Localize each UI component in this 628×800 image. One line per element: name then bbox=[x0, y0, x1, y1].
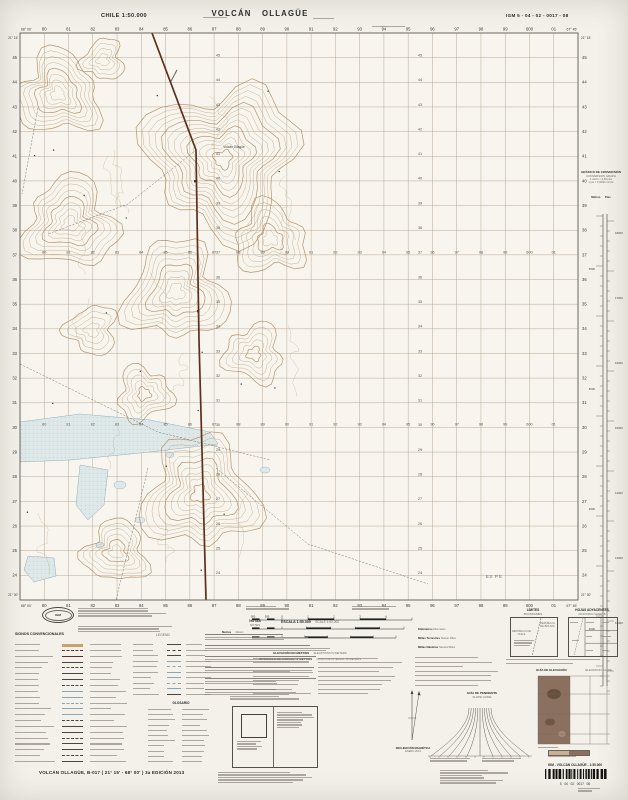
legend-row-label bbox=[90, 743, 127, 745]
northing-label-left: 28 bbox=[12, 474, 17, 479]
microtext-line bbox=[246, 606, 276, 607]
easting-label-interior: 90 bbox=[285, 250, 289, 254]
legend-row-symbol bbox=[167, 666, 181, 669]
salar-pond bbox=[260, 467, 270, 473]
refbox-caption bbox=[230, 696, 314, 701]
northing-label-interior: 39 bbox=[418, 201, 422, 205]
legend-title-es: SIGNOS CONVENCIONALES bbox=[15, 632, 64, 636]
legend-row-label bbox=[133, 694, 162, 696]
microtext-line bbox=[133, 683, 154, 684]
legend-row-symbol bbox=[167, 688, 181, 691]
northing-label-interior: 34 bbox=[216, 325, 220, 329]
easting-label-interior: 92 bbox=[333, 423, 337, 427]
legend-row-label bbox=[15, 714, 56, 716]
microtext-line bbox=[133, 655, 158, 656]
easting-label-bottom: 87 bbox=[212, 603, 217, 608]
reference-note bbox=[415, 671, 501, 673]
spot-height bbox=[34, 155, 35, 156]
slope-footnote bbox=[482, 758, 528, 763]
microtext-line bbox=[415, 675, 491, 676]
easting-label-interior: 93 bbox=[358, 250, 362, 254]
elevation-color-high bbox=[569, 751, 589, 755]
legend-row-label bbox=[90, 738, 127, 740]
datum-value bbox=[318, 662, 406, 664]
microtext-line bbox=[78, 631, 160, 632]
reference-note bbox=[415, 675, 501, 677]
northing-label-left: 44 bbox=[12, 80, 17, 85]
northing-label-right: 42 bbox=[582, 129, 587, 134]
map-sheet-page: { "colors":{"paper":"#f7f5ee","grid_line… bbox=[0, 0, 628, 800]
easting-label-interior: 91 bbox=[309, 250, 313, 254]
northing-label-interior: 26 bbox=[216, 522, 220, 526]
microtext-line bbox=[182, 756, 202, 757]
microtext-line bbox=[602, 622, 609, 623]
legend-row-label bbox=[90, 697, 127, 699]
legend-row-symbol bbox=[167, 655, 181, 658]
easting-label-top: 92 bbox=[333, 27, 338, 32]
glossary-translation bbox=[182, 745, 214, 747]
microtext-line bbox=[15, 691, 38, 692]
microtext-line bbox=[482, 760, 514, 761]
microtext-line bbox=[440, 770, 488, 771]
fan-curve bbox=[431, 708, 469, 756]
colorbar-ticks bbox=[548, 756, 588, 758]
legend-title-en: LEGEND bbox=[156, 633, 170, 637]
adjoining-sheet-code bbox=[586, 636, 596, 638]
easting-label-top: 87 bbox=[212, 27, 217, 32]
spot-height bbox=[279, 171, 280, 172]
corner-ne-lat: 21° 15' bbox=[581, 36, 591, 40]
northing-label-interior: 29 bbox=[418, 448, 422, 452]
microtext-line bbox=[90, 743, 122, 744]
easting-label-interior: 600 bbox=[526, 250, 532, 254]
reference-note bbox=[415, 680, 501, 682]
microtext-line bbox=[90, 726, 127, 727]
microtext-line bbox=[318, 662, 402, 663]
unit-label-es: Millas Náuticas bbox=[418, 645, 438, 649]
microtext-line bbox=[277, 719, 303, 720]
datum-value bbox=[318, 658, 406, 660]
sheet-code: IGM 5 - 04 - 02 - 0017 - 08 bbox=[506, 13, 569, 18]
spot-height bbox=[106, 312, 107, 313]
northing-label-right: 44 bbox=[582, 80, 587, 85]
microtext-line bbox=[15, 738, 48, 739]
scalebar-segment bbox=[350, 636, 373, 638]
country-scale-label: CHILE 1:50.000 bbox=[101, 13, 147, 19]
barcode-title: IGM - VOLCÁN OLLAGÜE - 1:50.000 bbox=[540, 763, 610, 767]
northing-label-interior: 41 bbox=[216, 152, 220, 156]
datum-label bbox=[253, 689, 311, 691]
adjoining-sheet-code bbox=[586, 650, 596, 652]
microtext-line bbox=[277, 714, 312, 715]
microtext-line bbox=[230, 696, 279, 697]
microtext-line bbox=[352, 608, 389, 609]
easting-label-interior: 81 bbox=[66, 250, 70, 254]
publisher-note bbox=[78, 608, 196, 618]
scalebar-segment bbox=[267, 627, 275, 629]
microtext-line bbox=[318, 667, 393, 668]
adjoining-title-en: ADJOINING SHEETS bbox=[566, 612, 618, 616]
northing-label-interior: 44 bbox=[216, 78, 220, 82]
datum-value bbox=[318, 671, 406, 673]
microtext-line bbox=[15, 714, 45, 715]
sheet-reference-box bbox=[232, 706, 318, 768]
easting-label-interior: 99 bbox=[503, 250, 507, 254]
northing-label-left: 45 bbox=[12, 55, 17, 60]
fine-print bbox=[218, 772, 318, 784]
microtext-line bbox=[182, 719, 207, 720]
microtext-line bbox=[90, 738, 124, 739]
legend-row-symbol bbox=[62, 673, 82, 676]
thumb-axis-labels bbox=[538, 747, 568, 749]
northing-label-interior: 34 bbox=[418, 325, 422, 329]
glossary-translation bbox=[182, 740, 214, 742]
microtext-line bbox=[90, 644, 121, 645]
easting-label-interior: 85 bbox=[163, 423, 167, 427]
northing-label-interior: 31 bbox=[418, 399, 422, 403]
legend-row-label bbox=[15, 726, 56, 728]
datum-label bbox=[253, 667, 311, 669]
easting-label-interior: 84 bbox=[139, 250, 143, 254]
glossary-term bbox=[148, 735, 176, 737]
easting-label-interior: 97 bbox=[455, 250, 459, 254]
easting-label-interior: 93 bbox=[358, 423, 362, 427]
easting-label-interior: 80 bbox=[42, 250, 46, 254]
microtext-line bbox=[78, 628, 159, 629]
microtext-line bbox=[318, 689, 380, 690]
northing-label-interior: 33 bbox=[418, 349, 422, 353]
easting-label-interior: 88 bbox=[236, 250, 240, 254]
microtext-line bbox=[148, 709, 171, 710]
easting-label-bottom: 81 bbox=[66, 603, 71, 608]
legend-row-label bbox=[15, 644, 56, 646]
northing-label-interior: 35 bbox=[418, 300, 422, 304]
conversion-note-2: 1 pie = 0,3048 metros bbox=[576, 181, 626, 184]
refbox-note bbox=[277, 712, 315, 729]
legend-row-symbol bbox=[62, 749, 82, 752]
microtext-line bbox=[253, 693, 311, 694]
legend-row-symbol bbox=[62, 656, 82, 659]
microtext-line bbox=[372, 26, 405, 27]
microtext-line bbox=[538, 747, 558, 748]
glossary-translation bbox=[182, 719, 214, 721]
northing-label-left: 43 bbox=[12, 104, 17, 109]
reference-note bbox=[415, 666, 501, 668]
refbox-note bbox=[237, 741, 269, 751]
elevation-guide-header: GUÍA DE ELEVACIÓN ELEVATION GUIDE bbox=[536, 668, 612, 672]
microtext-line bbox=[186, 688, 204, 689]
adjoining-sheet-code bbox=[602, 622, 612, 624]
salar-pond bbox=[114, 481, 126, 489]
easting-label-interior: 99 bbox=[503, 423, 507, 427]
datum-label bbox=[253, 680, 311, 682]
easting-label-top: 01 bbox=[551, 27, 556, 32]
corner-sw-lon: 68° 00' bbox=[21, 604, 32, 608]
microtext-line bbox=[186, 672, 206, 673]
spot-height bbox=[157, 95, 158, 96]
barcode-stripe bbox=[545, 769, 546, 779]
easting-label-interior: 96 bbox=[430, 423, 434, 427]
microtext-line bbox=[15, 726, 54, 727]
boundaries-header: LÍMITES BOUNDARIES bbox=[508, 608, 558, 616]
easting-label-interior: 600 bbox=[526, 423, 532, 427]
legend-row-label bbox=[90, 667, 127, 669]
spot-height bbox=[140, 371, 141, 372]
microtext-line bbox=[182, 709, 209, 710]
microtext-line bbox=[186, 650, 207, 651]
spot-height bbox=[223, 514, 224, 515]
microtext-line bbox=[133, 688, 150, 689]
microtext-line bbox=[148, 735, 168, 736]
microtext-line bbox=[253, 658, 310, 659]
legend-row-label bbox=[90, 720, 127, 722]
legend-row-symbol bbox=[167, 672, 181, 675]
igm-logo-ring bbox=[45, 610, 72, 621]
microtext-line bbox=[440, 772, 508, 773]
elevation-color-low bbox=[549, 751, 569, 755]
scale-tick-label: 2 bbox=[333, 615, 335, 619]
microtext-line bbox=[90, 673, 111, 674]
easting-label-interior: 95 bbox=[406, 423, 410, 427]
microtext-line bbox=[440, 775, 482, 776]
microtext-line bbox=[572, 640, 579, 641]
easting-label-interior: 86 bbox=[188, 423, 192, 427]
legend-row-symbol bbox=[62, 685, 82, 688]
barcode-stripe bbox=[563, 769, 564, 779]
microtext-line bbox=[15, 703, 39, 704]
northing-label-interior: 44 bbox=[418, 78, 422, 82]
northing-label-left: 42 bbox=[12, 129, 17, 134]
legend-row-label bbox=[90, 662, 127, 664]
easting-label-top: 90 bbox=[285, 27, 290, 32]
microtext-line bbox=[15, 673, 39, 674]
microtext-line bbox=[415, 662, 492, 663]
northing-label-left: 33 bbox=[12, 351, 17, 356]
microtext-line bbox=[230, 698, 299, 699]
legend-row-label bbox=[90, 703, 127, 705]
refbox-square-diagram bbox=[241, 714, 267, 738]
microtext-line bbox=[90, 679, 120, 680]
datum-label bbox=[253, 676, 311, 678]
microtext-line bbox=[237, 746, 262, 747]
microtext-line bbox=[440, 777, 484, 778]
barcode-stripe bbox=[593, 769, 595, 779]
legend-row-label bbox=[15, 656, 56, 658]
barcode-stripe bbox=[548, 769, 550, 779]
glossary-translation bbox=[182, 730, 214, 732]
legend-row-symbol bbox=[62, 743, 82, 746]
microtext-line bbox=[182, 730, 207, 731]
legend-row-symbol bbox=[62, 703, 82, 706]
microtext-line bbox=[148, 745, 164, 746]
easting-label-interior: 92 bbox=[333, 250, 337, 254]
microtext-line bbox=[15, 685, 39, 686]
reference-note bbox=[415, 685, 501, 687]
datum-value bbox=[318, 676, 406, 678]
northing-label-interior: 29 bbox=[216, 448, 220, 452]
legend-row-symbol bbox=[167, 650, 181, 653]
easting-label-interior: 98 bbox=[479, 250, 483, 254]
scale-caption bbox=[352, 606, 410, 611]
northing-label-left: 30 bbox=[12, 425, 17, 430]
microtext-line bbox=[586, 650, 593, 651]
microtext-line bbox=[218, 772, 290, 773]
legend-row-symbol bbox=[62, 662, 82, 665]
scalebar-unit-row: Millas Náuticas Nautical Miles bbox=[418, 635, 508, 653]
northing-label-interior: 37 bbox=[216, 251, 220, 255]
microtext-line bbox=[253, 662, 309, 663]
easting-label-top: 99 bbox=[503, 27, 508, 32]
microtext-line bbox=[415, 685, 478, 686]
legend-row-label bbox=[15, 650, 56, 652]
microtext-line bbox=[318, 671, 379, 672]
northing-label-interior: 30 bbox=[216, 423, 220, 427]
microtext-line bbox=[237, 743, 256, 744]
microtext-line bbox=[277, 722, 301, 723]
microtext-line bbox=[253, 676, 309, 677]
scale-tick-label: 3 bbox=[359, 615, 361, 619]
barcode-stripe bbox=[553, 769, 555, 779]
easting-label-bottom: 80 bbox=[42, 603, 47, 608]
northing-label-right: 45 bbox=[582, 55, 587, 60]
easting-label-interior: 82 bbox=[91, 250, 95, 254]
legend-row-label bbox=[90, 673, 127, 675]
easting-label-interior: 89 bbox=[260, 423, 264, 427]
legend-row-symbol bbox=[62, 650, 82, 653]
easting-label-interior: 98 bbox=[479, 423, 483, 427]
legend-row-label bbox=[133, 677, 162, 679]
microtext-line bbox=[246, 608, 289, 609]
barcode-stripe bbox=[588, 769, 590, 779]
microtext-line bbox=[15, 732, 46, 733]
microtext-line bbox=[182, 751, 204, 752]
meter-tick-label: 5000 bbox=[589, 387, 596, 391]
conversion-graph-header: GRÁFICO DE CONVERSIÓN CONVERSION GRAPH 1… bbox=[576, 170, 626, 203]
boundaries-diagram: REPÚBLICA DE BOLIVIA REPÚBLICA DE CHILE bbox=[510, 617, 558, 657]
relief-high-zone bbox=[545, 719, 555, 726]
legend-row-label bbox=[90, 656, 127, 658]
northing-label-left: 38 bbox=[12, 228, 17, 233]
legend-row-symbol bbox=[167, 694, 181, 697]
microtext-line bbox=[440, 782, 496, 783]
glossary-term bbox=[148, 761, 176, 763]
glossary-term bbox=[148, 751, 176, 753]
microtext-line bbox=[78, 608, 148, 609]
legend-row-label bbox=[133, 661, 162, 663]
scale-tick-label: 0 bbox=[281, 615, 283, 619]
declination-diagram bbox=[396, 688, 430, 746]
legend-row-label bbox=[15, 738, 56, 740]
glossary-term bbox=[148, 730, 176, 732]
easting-label-top: 96 bbox=[430, 27, 435, 32]
feet-tick-label: 18000 bbox=[615, 231, 623, 235]
adjoining-header: HOJAS ADYACENTES ADJOINING SHEETS bbox=[566, 608, 618, 616]
glossary-translation bbox=[182, 709, 214, 711]
glossary-title: GLOSARIO bbox=[146, 701, 216, 705]
easting-label-interior: 96 bbox=[430, 250, 434, 254]
easting-label-interior: 01 bbox=[552, 423, 556, 427]
northing-label-left: 24 bbox=[12, 573, 17, 578]
publisher-note bbox=[78, 626, 174, 633]
microtext-line bbox=[90, 685, 118, 686]
glossary-translation bbox=[182, 735, 214, 737]
legend-row-label bbox=[133, 672, 162, 674]
conversion-col-metros: Metros bbox=[591, 195, 600, 199]
easting-label-interior: 91 bbox=[309, 423, 313, 427]
declination-labels: DECLINACIÓN MAGNÉTICA ENERO 2013 bbox=[392, 747, 434, 753]
microtext-line bbox=[182, 761, 202, 762]
scalebar-segment bbox=[252, 618, 260, 620]
microtext-line bbox=[253, 667, 295, 668]
legend-row-label bbox=[90, 679, 127, 681]
igm-logo: IGM bbox=[42, 607, 74, 623]
easting-label-interior: 85 bbox=[163, 250, 167, 254]
legend-row-label bbox=[133, 655, 162, 657]
datum-value bbox=[318, 684, 406, 686]
easting-label-bottom: 97 bbox=[454, 603, 459, 608]
barcode-stripe bbox=[601, 769, 604, 779]
northing-label-right: 43 bbox=[582, 104, 587, 109]
easting-label-top: 88 bbox=[236, 27, 241, 32]
northing-label-interior: 28 bbox=[418, 473, 422, 477]
easting-label-top: 81 bbox=[66, 27, 71, 32]
legend-row-symbol bbox=[62, 755, 82, 758]
microtext-line bbox=[277, 717, 314, 718]
spot-height bbox=[198, 410, 199, 411]
legend-row-label bbox=[90, 761, 127, 763]
microtext-line bbox=[133, 672, 158, 673]
microtext-line bbox=[440, 780, 503, 781]
microtext-line bbox=[253, 684, 298, 685]
datum-label bbox=[253, 662, 311, 664]
northing-label-left: 34 bbox=[12, 326, 17, 331]
legend-row-label bbox=[15, 732, 56, 734]
boundary-caption bbox=[506, 663, 624, 665]
microtext-line bbox=[78, 610, 148, 611]
legend-row-symbol bbox=[62, 679, 82, 682]
barcode-stripe bbox=[604, 769, 607, 779]
footer-map-title: VOLCÁN OLLAGÜE, B-017 ( 21° 15' - 68° 00… bbox=[39, 770, 184, 775]
glossary-term bbox=[148, 740, 176, 742]
glossary-translation bbox=[182, 761, 214, 763]
legend-row-symbol bbox=[62, 714, 82, 717]
microtext-line bbox=[415, 666, 463, 667]
microtext-line bbox=[90, 656, 122, 657]
spot-height bbox=[166, 466, 167, 467]
microtext-line bbox=[277, 727, 299, 728]
northing-label-left: 25 bbox=[12, 548, 17, 553]
easting-label-top: 84 bbox=[139, 27, 144, 32]
northing-label-interior: 39 bbox=[216, 201, 220, 205]
microtext-line bbox=[90, 755, 117, 756]
declination-magnetic-north bbox=[412, 693, 419, 740]
barcode-stripe bbox=[591, 769, 592, 779]
meter-tick-label: 5500 bbox=[589, 267, 596, 271]
microtext-line bbox=[90, 714, 125, 715]
easting-label-bottom: 96 bbox=[430, 603, 435, 608]
barcode-stripe bbox=[577, 769, 578, 779]
microtext-line bbox=[514, 645, 530, 646]
microtext-line bbox=[15, 662, 48, 663]
northing-label-left: 27 bbox=[12, 499, 17, 504]
microtext-line bbox=[586, 622, 594, 623]
glossary-term bbox=[148, 756, 176, 758]
microtext-line bbox=[586, 636, 592, 637]
scale-tick-label: 1 bbox=[307, 615, 309, 619]
scale-tick-label: 4 bbox=[385, 615, 387, 619]
feet-tick-label: 16000 bbox=[615, 361, 623, 365]
barcode-stripe bbox=[568, 769, 570, 779]
